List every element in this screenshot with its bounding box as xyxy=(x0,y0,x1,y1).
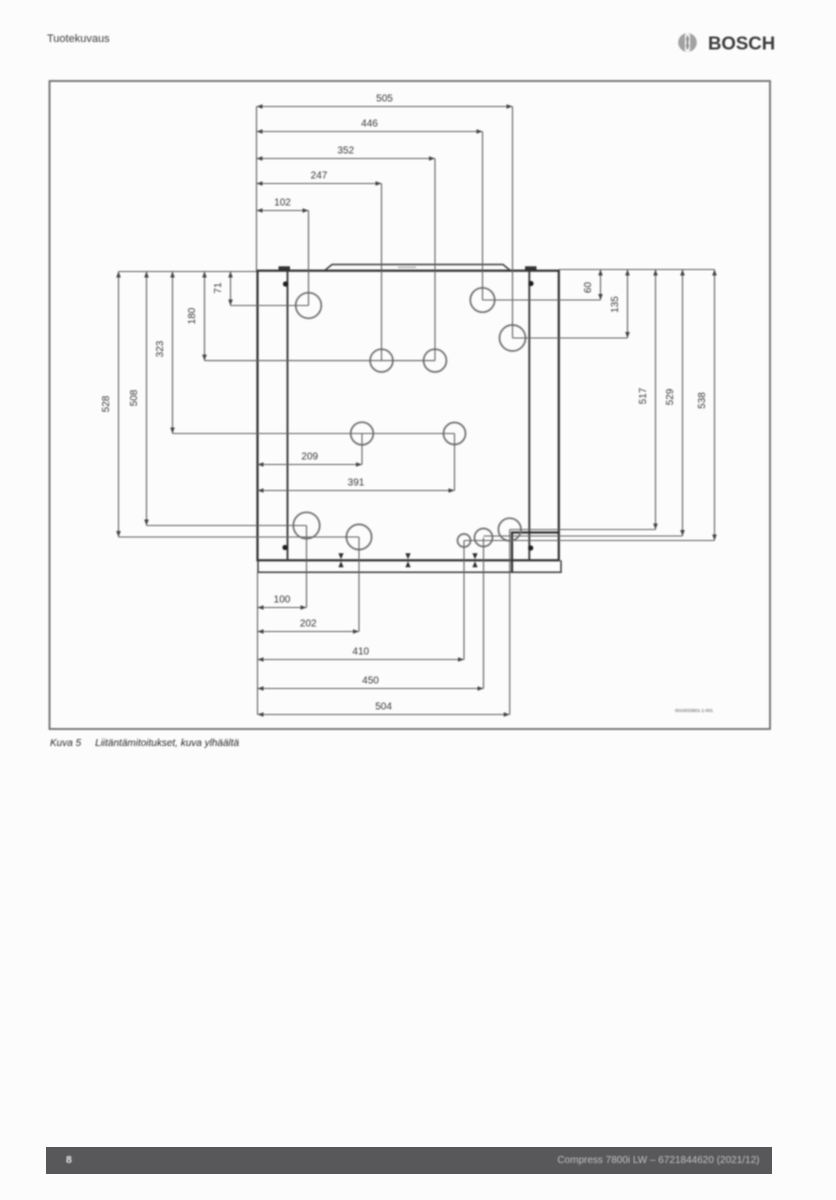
svg-text:446: 446 xyxy=(361,119,378,130)
svg-text:529: 529 xyxy=(665,388,676,405)
svg-text:505: 505 xyxy=(376,94,393,105)
svg-text:60: 60 xyxy=(583,282,594,294)
svg-text:247: 247 xyxy=(311,171,328,182)
svg-text:209: 209 xyxy=(301,452,318,463)
svg-text:100: 100 xyxy=(274,595,291,606)
svg-text:323: 323 xyxy=(155,340,166,357)
svg-text:508: 508 xyxy=(129,389,140,406)
svg-text:517: 517 xyxy=(638,387,649,404)
svg-text:450: 450 xyxy=(362,676,379,687)
svg-text:180: 180 xyxy=(187,307,198,324)
svg-text:0010033801-1-001: 0010033801-1-001 xyxy=(675,708,714,713)
svg-text:538: 538 xyxy=(697,392,708,409)
svg-text:504: 504 xyxy=(375,702,392,713)
svg-text:410: 410 xyxy=(352,647,369,658)
svg-text:528: 528 xyxy=(101,395,112,412)
svg-text:202: 202 xyxy=(300,619,317,630)
svg-text:391: 391 xyxy=(348,478,365,489)
svg-text:71: 71 xyxy=(213,282,224,294)
svg-text:135: 135 xyxy=(610,296,621,313)
svg-text:352: 352 xyxy=(337,146,354,157)
svg-text:102: 102 xyxy=(274,198,291,209)
